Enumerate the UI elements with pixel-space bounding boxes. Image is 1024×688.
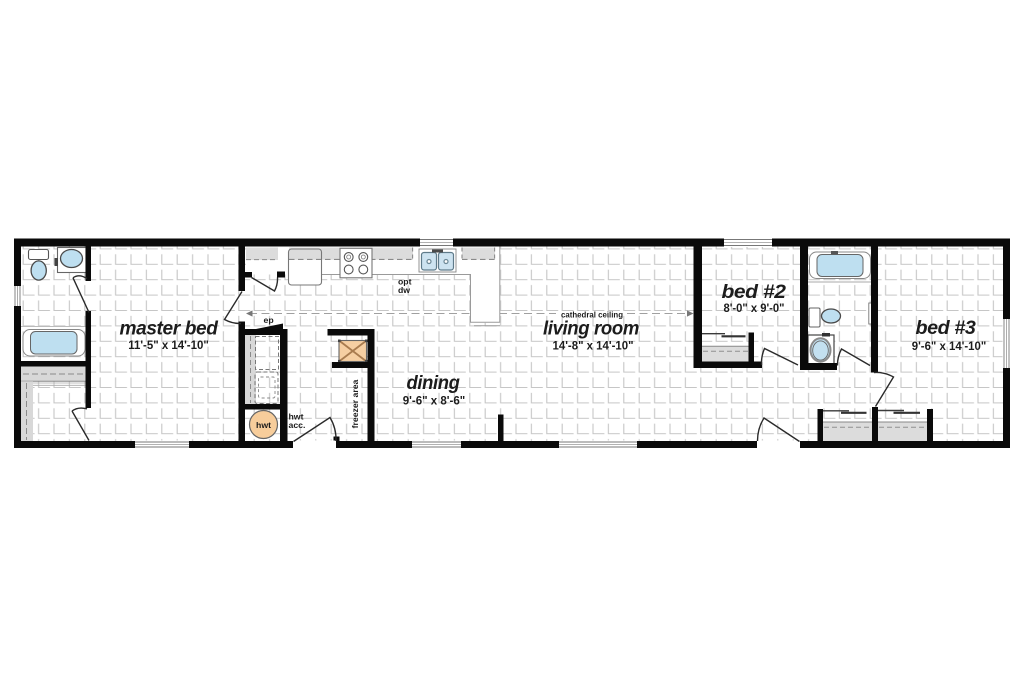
svg-text:9'-6" x 8'-6": 9'-6" x 8'-6" [403, 394, 466, 408]
svg-text:hwt: hwt [256, 420, 271, 430]
svg-text:ep: ep [264, 315, 274, 325]
svg-text:dining: dining [407, 372, 460, 394]
svg-text:8'-0" x 9'-0": 8'-0" x 9'-0" [724, 301, 785, 315]
svg-text:living room: living room [543, 318, 639, 340]
svg-text:master bed: master bed [120, 318, 219, 340]
svg-text:9'-6" x 14'-10": 9'-6" x 14'-10" [912, 339, 987, 353]
svg-text:11'-5" x 14'-10": 11'-5" x 14'-10" [128, 338, 209, 352]
svg-text:bed #2: bed #2 [722, 281, 787, 303]
svg-text:acc.: acc. [289, 420, 306, 430]
svg-text:dw: dw [398, 285, 410, 295]
svg-text:freezer area: freezer area [350, 379, 360, 428]
svg-text:bed #3: bed #3 [916, 317, 977, 339]
svg-text:14'-8" x 14'-10": 14'-8" x 14'-10" [553, 339, 634, 353]
